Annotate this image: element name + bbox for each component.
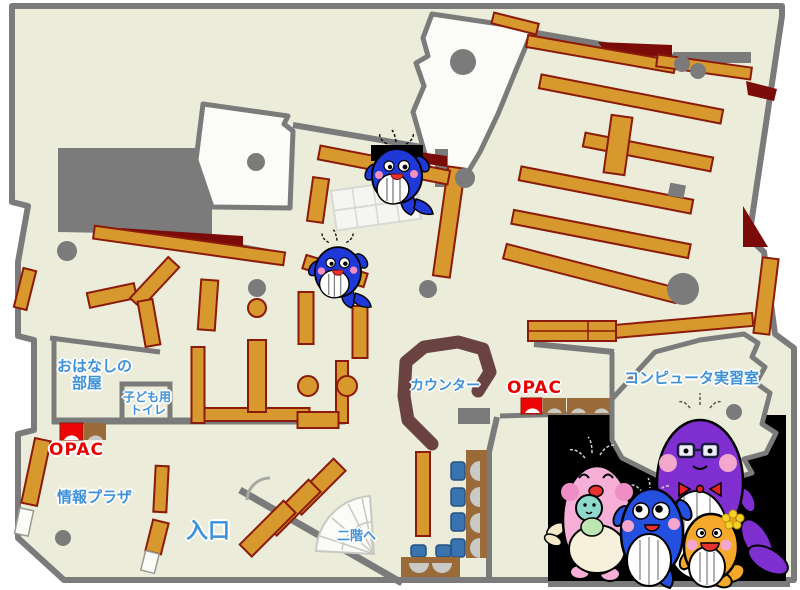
opac-terminal-right (521, 398, 613, 414)
opac-terminal-left (60, 423, 106, 440)
label-storytelling-room: おはなしの部屋 (57, 358, 132, 391)
library-floor-map: おはなしの部屋 子ども用トイレ OPAC 情報プラザ 入口 カウンター OPAC… (0, 0, 800, 590)
label-info-plaza: 情報プラザ (57, 489, 132, 506)
room-with-tables (196, 104, 293, 208)
label-to-second-floor: 二階へ (337, 530, 376, 544)
counter-side-desk (458, 408, 490, 424)
label-kids-toilet: 子ども用トイレ (123, 391, 171, 417)
label-entrance: 入口 (186, 520, 230, 544)
label-opac-left: OPAC (49, 441, 104, 460)
label-computer-room: コンピュータ実習室 (624, 370, 759, 387)
label-counter: カウンター (410, 379, 480, 394)
label-opac-right: OPAC (507, 379, 562, 398)
